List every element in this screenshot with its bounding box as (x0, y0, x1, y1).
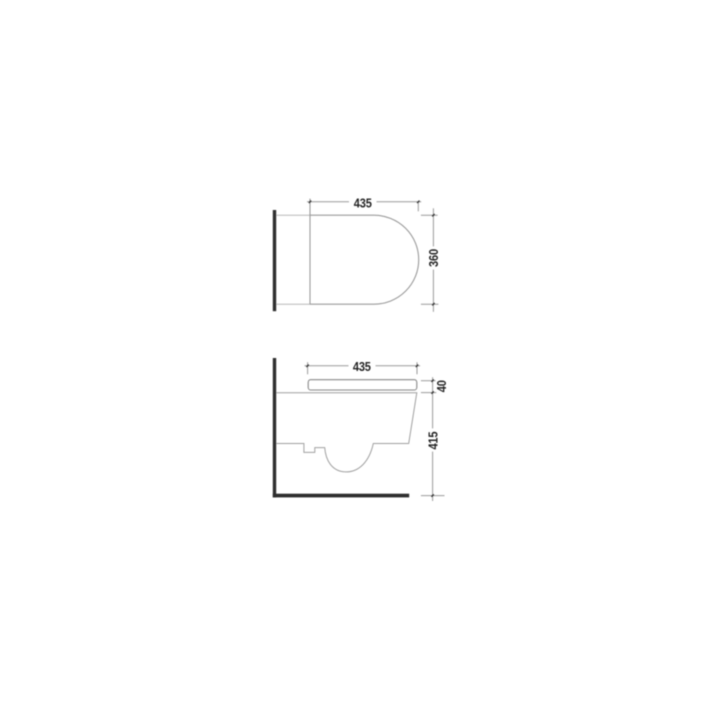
svg-text:415: 415 (426, 431, 441, 449)
svg-text:40: 40 (434, 380, 449, 392)
svg-text:360: 360 (426, 249, 441, 267)
svg-text:435: 435 (353, 359, 371, 374)
svg-text:435: 435 (354, 195, 372, 210)
